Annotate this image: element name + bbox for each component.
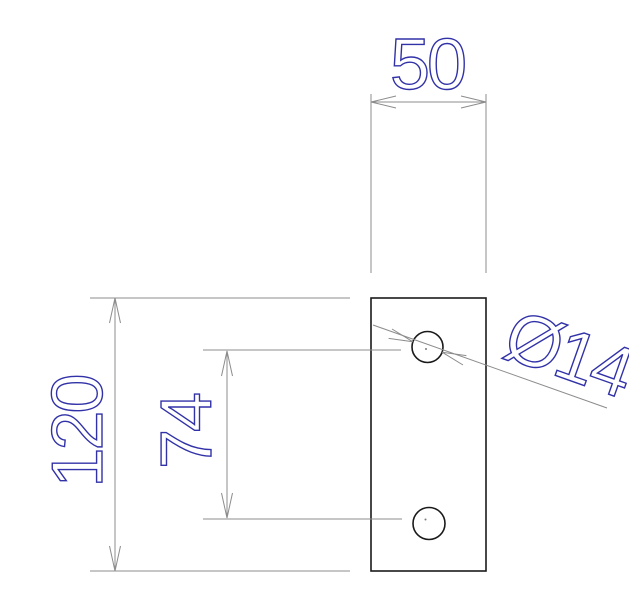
width-dimension-text: 50: [390, 25, 465, 105]
dimension-width: 50: [371, 25, 486, 273]
part-outline: [371, 298, 486, 571]
diameter-dimension-text: Ø14: [495, 295, 629, 413]
diameter-arrow-right: [442, 352, 466, 365]
top-hole-circle: [412, 332, 443, 363]
technical-drawing-svg: 50 120 74 Ø14: [0, 0, 629, 593]
dimension-hole-diameter: Ø14: [373, 295, 629, 413]
plate-outline-rect: [371, 298, 486, 571]
dimension-hole-spacing: 74: [147, 350, 402, 519]
height-dimension-text: 120: [38, 375, 118, 487]
bottom-hole-center-mark: [425, 519, 427, 521]
spacing-dimension-text: 74: [147, 394, 227, 469]
diameter-arrow-left: [389, 329, 413, 342]
bottom-hole-circle: [413, 508, 445, 540]
top-hole-center-mark: [425, 348, 427, 350]
drawing-canvas: 50 120 74 Ø14: [0, 0, 629, 593]
